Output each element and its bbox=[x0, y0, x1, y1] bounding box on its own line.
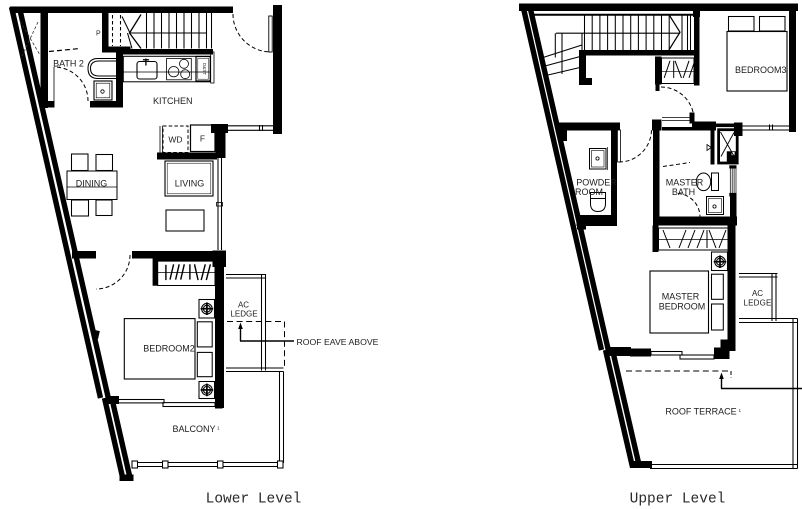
svg-text:LIVING: LIVING bbox=[175, 179, 205, 189]
svg-text:ROOF EAVE ABOVE: ROOF EAVE ABOVE bbox=[297, 337, 379, 347]
svg-text:DINING: DINING bbox=[76, 179, 108, 189]
svg-text:F: F bbox=[200, 134, 205, 144]
svg-text:AC: AC bbox=[752, 289, 763, 298]
svg-text:MASTER: MASTER bbox=[662, 291, 700, 301]
svg-text:BEDROOM: BEDROOM bbox=[659, 302, 706, 312]
svg-text:LEDGE: LEDGE bbox=[743, 299, 771, 308]
svg-text:P: P bbox=[96, 31, 101, 38]
svg-text:Upper Level: Upper Level bbox=[630, 492, 726, 508]
svg-text:1: 1 bbox=[739, 408, 742, 413]
svg-text:1: 1 bbox=[217, 426, 220, 431]
svg-text:WD: WD bbox=[168, 135, 182, 145]
svg-text:BALCONY: BALCONY bbox=[172, 424, 215, 434]
svg-text:D&ST: D&ST bbox=[202, 63, 207, 75]
svg-text:ROOM: ROOM bbox=[575, 187, 603, 197]
svg-text:BEDROOM3: BEDROOM3 bbox=[735, 65, 787, 75]
svg-text:BATH 2: BATH 2 bbox=[53, 59, 84, 69]
svg-text:Lower Level: Lower Level bbox=[206, 492, 302, 508]
svg-text:KITCHEN: KITCHEN bbox=[153, 96, 193, 106]
svg-text:ROOF TERRACE: ROOF TERRACE bbox=[665, 407, 736, 417]
svg-text:MASTER: MASTER bbox=[666, 178, 704, 188]
svg-text:POWDER: POWDER bbox=[576, 178, 617, 188]
svg-text:BATH: BATH bbox=[672, 187, 695, 197]
svg-text:LEDGE: LEDGE bbox=[230, 310, 257, 319]
svg-text:AC: AC bbox=[238, 301, 249, 310]
svg-text:BEDROOM2: BEDROOM2 bbox=[143, 344, 195, 354]
